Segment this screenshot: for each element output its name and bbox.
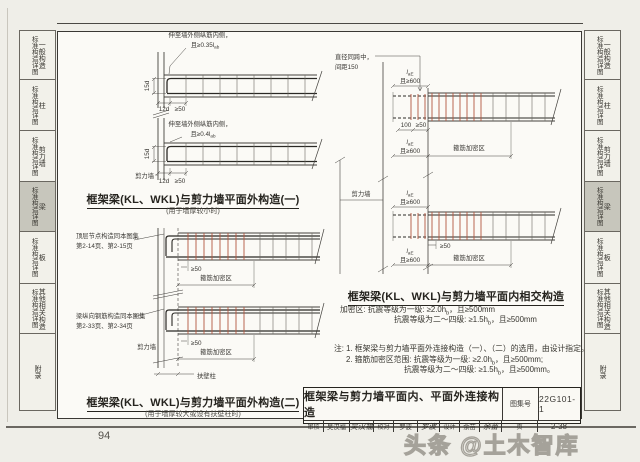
d2-note1-line1: 顶层节点构造同本图集 [76,231,140,240]
dense-zone-spec-2: 抗震等级为二～四级: ≥1.5hb，且≥500mm [394,314,537,327]
sidebar-left-tab-beam: 标准构造详图梁 [19,181,56,232]
review-signature: 吴汉福 [350,421,374,432]
scanned-standard-page: 标准构造详图一般构造 标准构造详图柱 标准构造详图剪力墙 标准构造详图梁 标准构… [0,0,640,462]
d2-dim-ge50-2: ≥50 [191,340,202,347]
sidebar-right-tab-column: 标准构造详图柱 [584,79,621,131]
sidebar-right-tab-other: 标准构造详图其他相关构造 [584,283,621,334]
d1-dim-ge50-2: ≥50 [175,178,186,185]
d3-note-line2: 间距150 [335,63,359,71]
drawing-in-plane: 直径同跨中， 间距150 [333,48,583,288]
d3-dense-label: 箍筋加密区 [453,143,484,152]
d2-note2-line1: 梁纵向钢筋构造同本图集 [76,311,146,320]
sheet-title: 框架梁与剪力墙平面内、平面外连接构造 [304,388,503,420]
d1-wall-label: 剪力墙 [135,171,155,180]
sidebar-left-tab-other: 标准构造详图其他相关构造 [19,283,56,334]
sidebar-right-tab-slab: 标准构造详图板 [584,231,621,284]
drawing-plane-out-1: 伸至墙外侧纵筋内侧， 且≥0.35lab 15d 12d ≥50 [70,22,320,190]
d3-ge600-top2: 且≥600 [400,198,421,206]
sidebar-right: 标准构造详图一般构造 标准构造详图柱 标准构造详图剪力墙 标准构造详图梁 标准构… [584,31,621,411]
sidebar-right-tab-general: 标准构造详图一般构造 [584,30,621,80]
d2-dense-label: 箍筋加密区 [200,273,231,282]
note-3: 抗震等级为二～四级: ≥1.5hb，且≥500mm。 [404,364,555,377]
title-block-row-1: 框架梁与剪力墙平面内、平面外连接构造 图集号 22G101-1 [304,388,580,421]
d1-dim-15d-2: 15d [144,148,151,159]
d2-wall-label: 剪力墙 [137,342,157,351]
d3-ge600-top1: 且≥600 [400,77,421,85]
atlas-number-value: 22G101-1 [539,388,580,420]
d3-laE-top1: laE [406,69,413,77]
d1-note2-line1: 伸至墙外侧纵筋内侧， [169,119,232,128]
atlas-number-label: 图集号 [503,388,539,420]
d2-dim-ge50: ≥50 [191,266,202,273]
d3-ge600-bot1: 且≥600 [400,147,421,155]
d1-note1-line2: 且≥0.35lab [191,41,220,50]
sidebar-left-tab-shearwall: 标准构造详图剪力墙 [19,130,56,182]
drawing-plane-out-2: 顶层节点构造同本图集 第2-14页、第2-15页 ≥50 箍筋加密区 [70,222,325,392]
watermark: 头条 @土木智库 [404,428,580,460]
sidebar-right-tab-beam: 标准构造详图梁 [584,181,621,232]
d2-subtitle: (用于墙厚较大或设有扶壁柱时) [62,409,324,419]
d3-ge600-bot2: 且≥600 [400,256,421,264]
d1-dim-ge50: ≥50 [175,106,186,113]
book-page-number: 94 [98,430,110,442]
sidebar-right-tab-shearwall: 标准构造详图剪力墙 [584,130,621,182]
d2-dense-label-2: 箍筋加密区 [200,347,231,356]
d2-note2-line2: 第2-33页、第2-34页 [76,321,133,330]
note-1: 注: 1. 框架梁与剪力墙平面外连接构造（一）、（二）的选用，由设计指定。 [334,343,589,354]
d2-note1-line2: 第2-14页、第2-15页 [76,241,133,250]
d2-pilaster-label: 扶壁柱 [197,371,217,380]
sidebar-left-tab-slab: 标准构造详图板 [19,231,56,284]
d3-laE-top2: laE [406,190,413,198]
d3-laE-bot2: laE [406,248,413,256]
d1-dim-12d: 12d [159,106,170,113]
review-label: 审核 [304,421,324,432]
d3-wall-label: 剪力墙 [352,189,372,198]
sidebar-left: 标准构造详图一般构造 标准构造详图柱 标准构造详图剪力墙 标准构造详图梁 标准构… [19,31,56,411]
d3-note-line1: 直径同跨中， [335,52,373,61]
d3-dense-label-2: 箍筋加密区 [453,253,484,262]
d3-dim-ge50: ≥50 [416,122,427,129]
d3-laE-bot1: laE [406,139,413,147]
sidebar-left-tab-column: 标准构造详图柱 [19,79,56,131]
d1-note1-line1: 伸至墙外侧纵筋内侧， [169,30,232,39]
d1-note2-line2: 且≥0.4lab [190,130,215,139]
d1-dim-12d-2: 12d [159,178,170,185]
sidebar-left-tab-appendix: 附录 [19,333,56,411]
title-block: 框架梁与剪力墙平面内、平面外连接构造 图集号 22G101-1 审核 吴汉福 吴… [303,387,581,424]
d3-dim-100: 100 [401,122,412,129]
d3-dim-ge50-2: ≥50 [440,243,451,250]
page-left-edge [7,8,8,422]
review-name: 吴汉福 [324,421,350,432]
d1-subtitle: (用于墙厚较小时) [62,206,324,216]
sidebar-left-tab-general: 标准构造详图一般构造 [19,30,56,80]
sidebar-right-tab-appendix: 附录 [584,333,621,411]
check-label: 校对 [374,421,394,432]
d1-dim-15d: 15d [144,80,151,91]
